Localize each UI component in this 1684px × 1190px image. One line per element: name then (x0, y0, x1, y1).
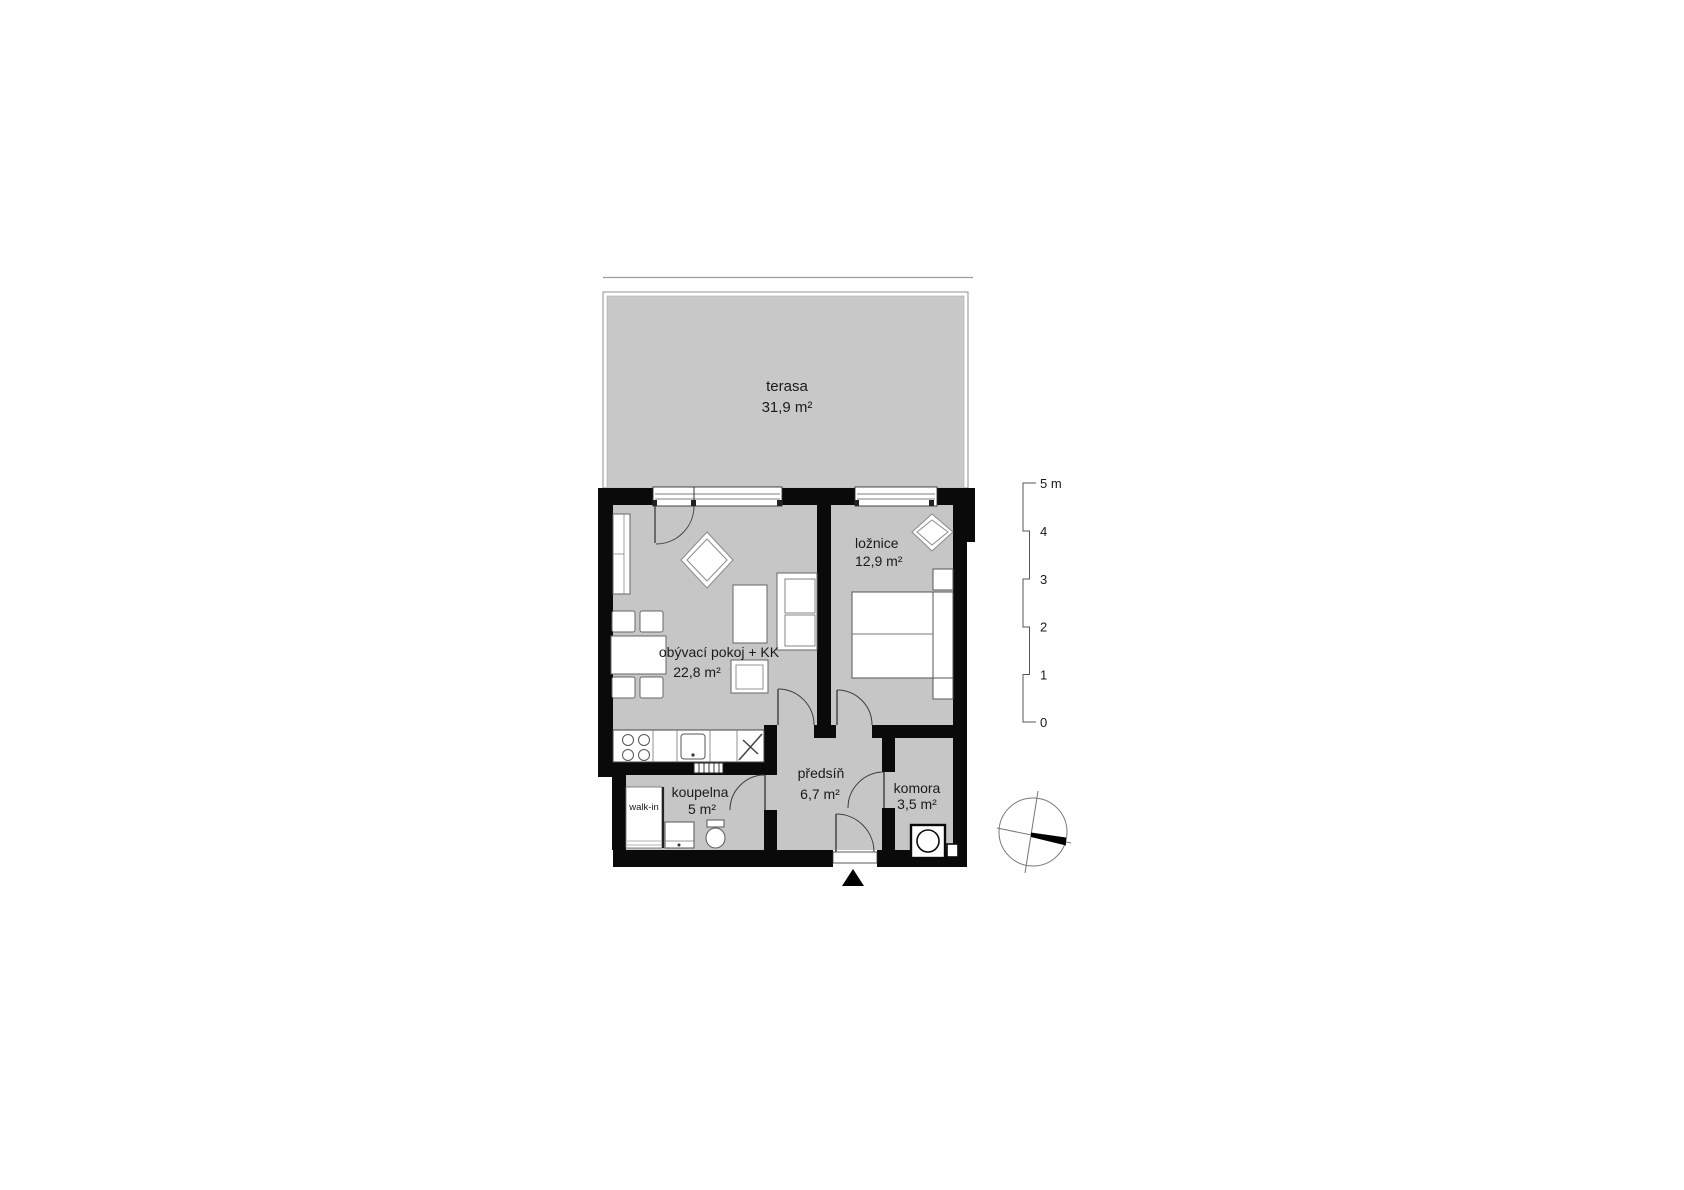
wall-bathroom-left (612, 777, 626, 850)
wall-top-right (937, 488, 975, 505)
washbasin-icon (665, 822, 694, 848)
duct-box (947, 844, 958, 857)
doorway-living-hall (777, 725, 814, 738)
scale-tick-2: 2 (1040, 620, 1047, 635)
hall-area: 6,7 m² (800, 786, 840, 802)
chair (640, 611, 663, 632)
wall-storage-divider-lower (882, 808, 895, 850)
chair (640, 677, 663, 698)
storage-area: 3,5 m² (897, 796, 937, 812)
scale-tick-0: 0 (1040, 715, 1047, 730)
bedroom-label: ložnice (855, 535, 899, 551)
walk-in-closet (626, 787, 663, 848)
scale-tick-3: 3 (1040, 572, 1047, 587)
bedroom-window (855, 487, 937, 506)
entrance-arrow-icon (842, 869, 864, 886)
sofa (777, 573, 817, 650)
north-needle-icon (1031, 833, 1066, 846)
shelf-unit (613, 514, 630, 594)
doorway-hall-bathroom (764, 775, 777, 810)
wall-connector (764, 725, 777, 775)
bathroom-label: koupelna (672, 784, 729, 800)
scale-bar-line (1023, 483, 1036, 722)
wall-bottom-left (613, 850, 833, 867)
washing-machine-icon (911, 825, 945, 858)
doorway-bedroom-hall (836, 725, 872, 738)
wall-band-stub (814, 725, 836, 738)
dining-table (611, 636, 666, 674)
radiator-icon (694, 763, 723, 773)
floor-plan-page: terasa 31,9 m² obývací pokoj + KK 22,8 m… (0, 0, 1684, 1190)
nightstand (933, 678, 953, 699)
terrace-area: 31,9 m² (762, 399, 813, 416)
toilet-icon (706, 820, 725, 848)
wall-top-middle (782, 488, 855, 505)
wall-corner-block (953, 505, 975, 542)
bed (852, 592, 953, 678)
wall-top-left (598, 488, 653, 505)
terrace-label: terasa (766, 378, 808, 395)
entrance-threshold (833, 852, 877, 863)
storage-label: komora (894, 780, 941, 796)
nightstand (933, 569, 953, 590)
sink-icon (681, 734, 705, 759)
scale-bar: 5 m 4 3 2 1 0 (1023, 476, 1062, 730)
living-room-area: 22,8 m² (673, 664, 721, 680)
wall-storage-divider-upper (882, 738, 895, 772)
armchair (733, 585, 767, 643)
wall-bathroom-hall-divider (764, 810, 777, 850)
chair (612, 677, 635, 698)
walk-in-label: walk-in (628, 802, 659, 813)
scale-tick-4: 4 (1040, 524, 1047, 539)
scale-tick-5m: 5 m (1040, 476, 1062, 491)
floor-plan-drawing: terasa 31,9 m² obývací pokoj + KK 22,8 m… (0, 0, 1684, 1190)
wall-right (953, 542, 967, 865)
bathroom-area: 5 m² (688, 801, 716, 817)
chair (612, 611, 635, 632)
compass-icon (997, 791, 1071, 873)
coffee-table (731, 660, 768, 693)
hall-label: předsíň (798, 765, 845, 781)
bedroom-area: 12,9 m² (855, 553, 903, 569)
living-room-label: obývací pokoj + KK (659, 644, 780, 660)
wall-kitchen (613, 762, 764, 775)
wall-band-right (872, 725, 955, 738)
scale-tick-1: 1 (1040, 668, 1047, 683)
wall-living-bedroom-divider (817, 505, 831, 725)
